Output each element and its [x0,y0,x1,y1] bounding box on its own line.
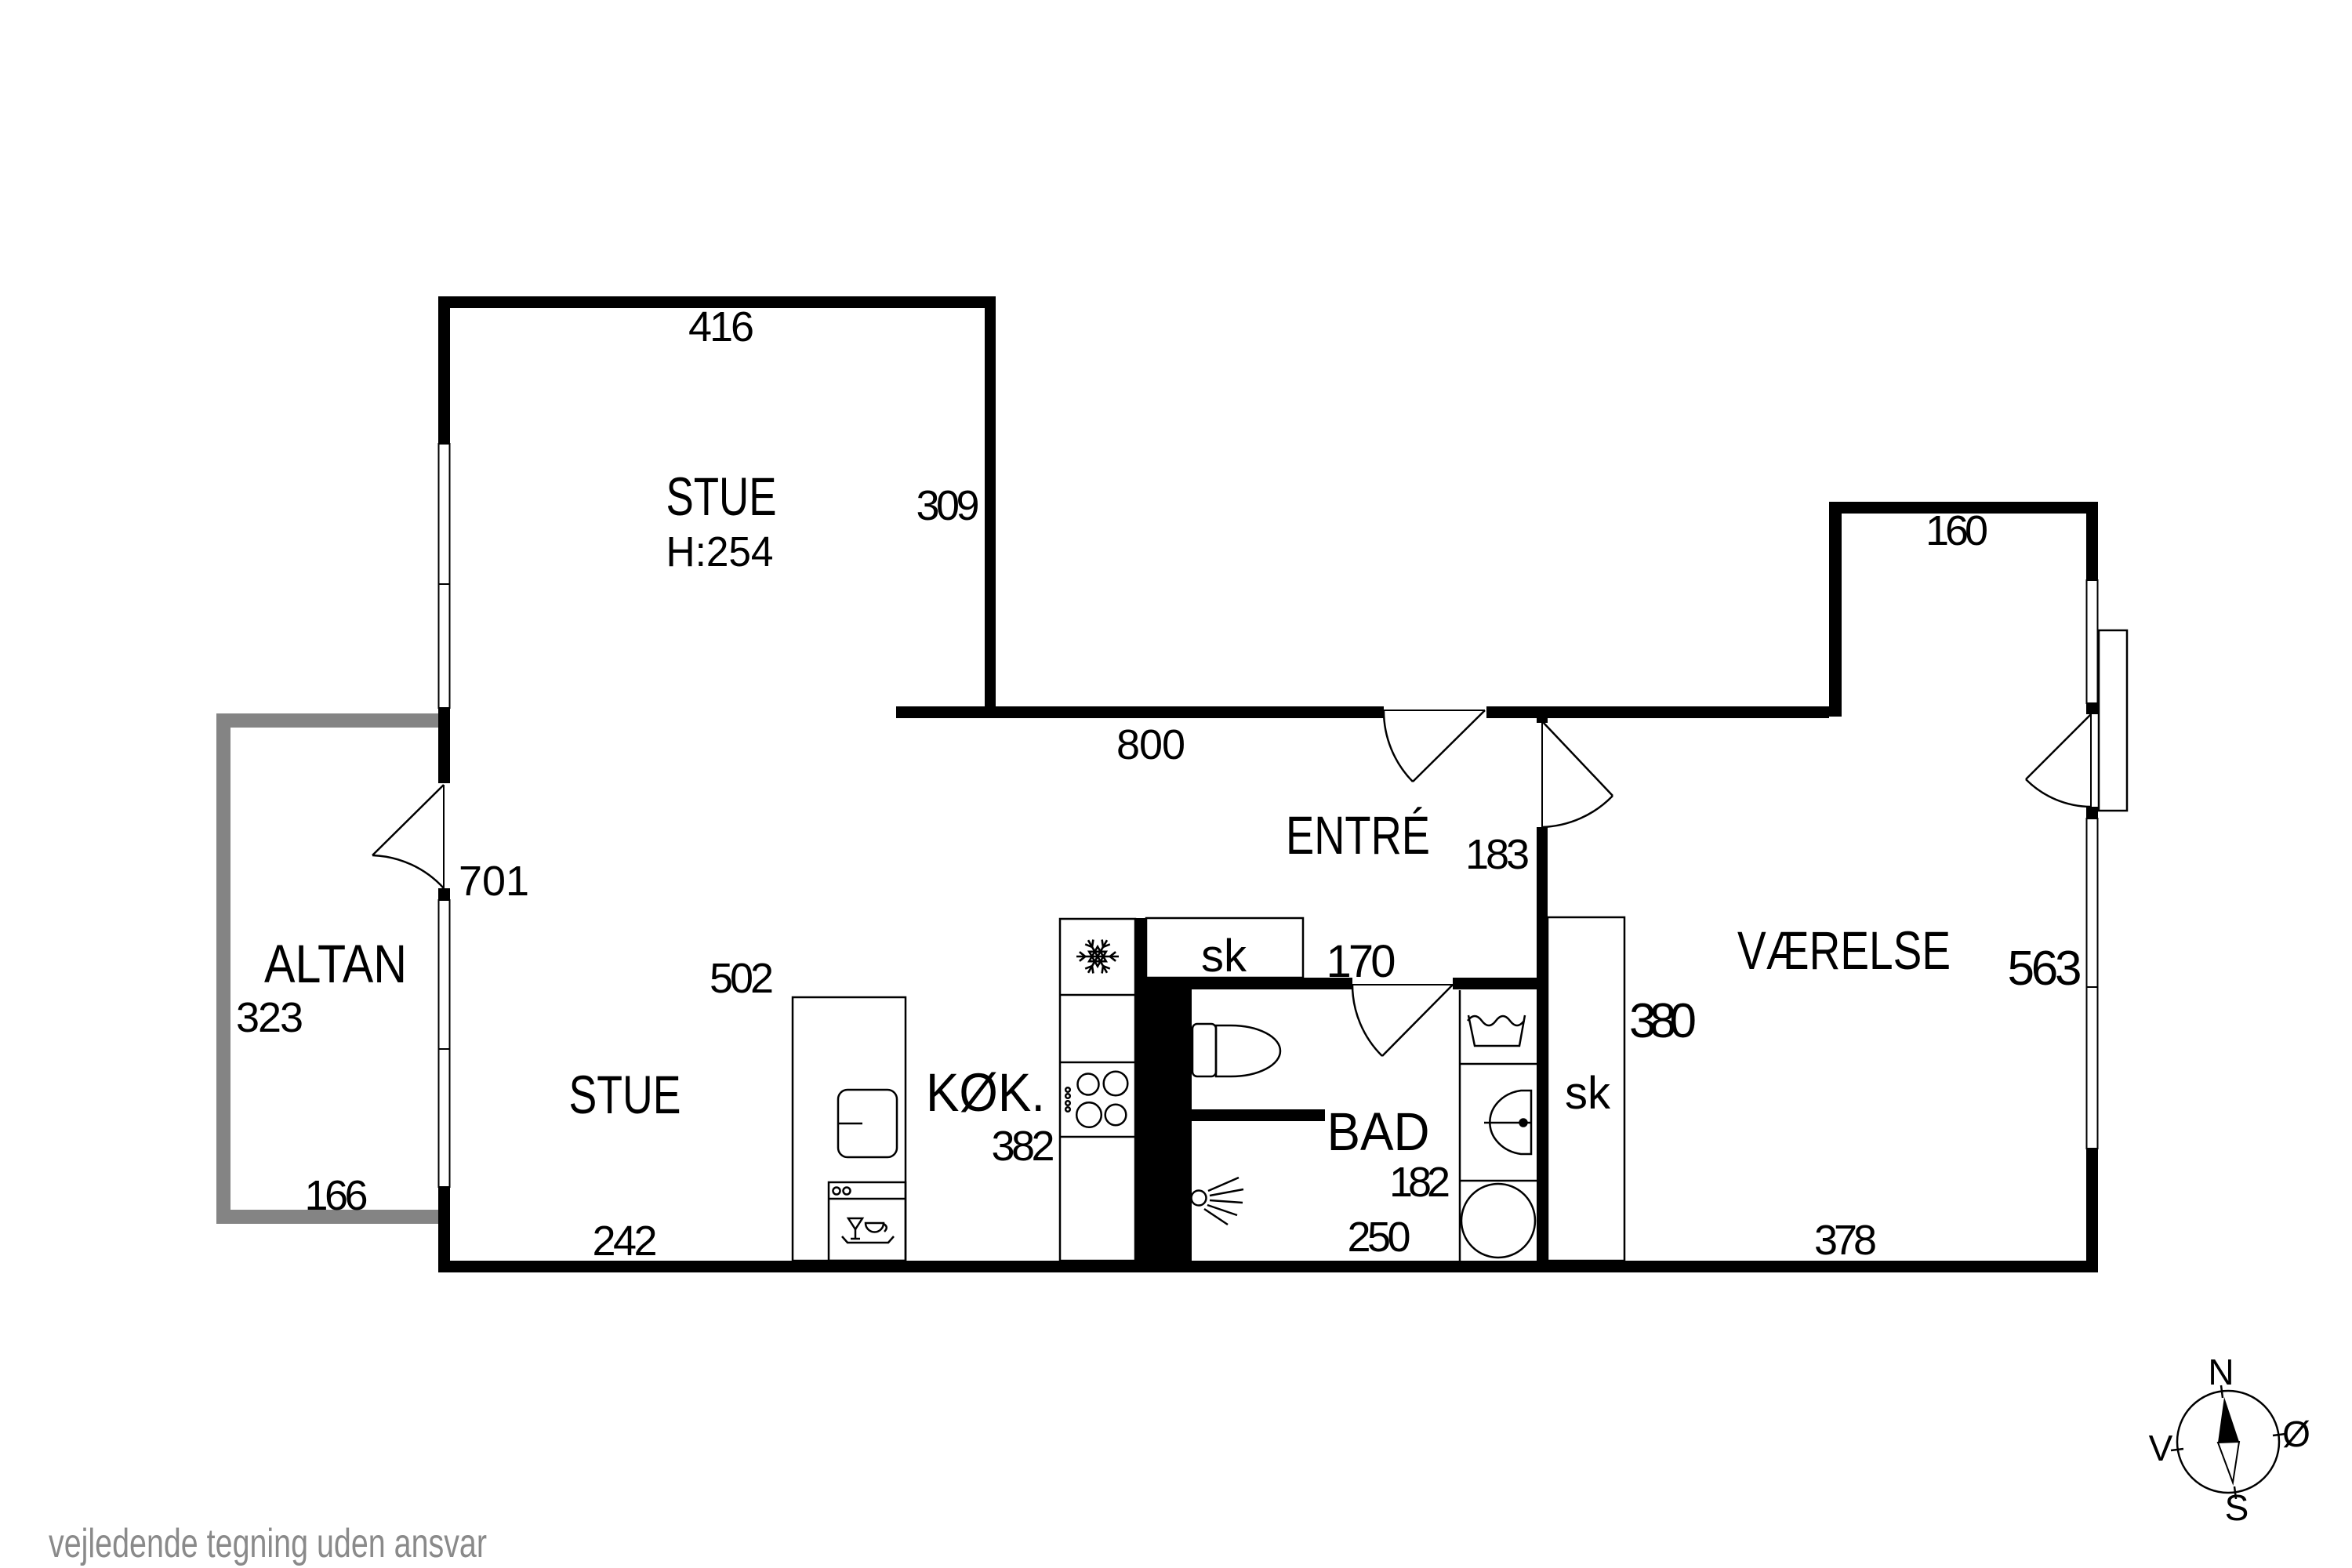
svg-text:323: 323 [236,994,303,1041]
svg-text:160: 160 [1926,507,1988,554]
svg-text:vejledende tegning uden ansvar: vejledende tegning uden ansvar [49,1521,487,1566]
svg-text:242: 242 [593,1218,658,1265]
svg-text:V: V [2149,1428,2173,1468]
svg-text:STUE: STUE [666,466,777,527]
svg-text:sk: sk [1565,1068,1611,1119]
svg-text:sk: sk [1201,931,1247,982]
svg-text:416: 416 [688,303,754,350]
svg-text:502: 502 [710,955,774,1002]
svg-text:182: 182 [1389,1159,1450,1206]
svg-text:ENTRÉ: ENTRÉ [1286,805,1430,866]
svg-text:KØK.: KØK. [926,1062,1045,1123]
svg-text:563: 563 [2008,942,2082,996]
svg-text:ALTAN: ALTAN [264,934,407,994]
svg-text:183: 183 [1465,831,1530,878]
svg-text:BAD: BAD [1327,1102,1430,1162]
svg-text:N: N [2208,1352,2234,1392]
svg-text:STUE: STUE [569,1065,681,1125]
svg-text:382: 382 [992,1123,1055,1170]
svg-text:170: 170 [1327,936,1396,987]
svg-text:701: 701 [459,858,529,905]
svg-text:H:254: H:254 [666,528,774,575]
svg-text:250: 250 [1348,1214,1411,1261]
svg-text:166: 166 [305,1172,368,1219]
svg-text:S: S [2225,1487,2249,1528]
svg-text:800: 800 [1116,721,1185,768]
svg-text:VÆRELSE: VÆRELSE [1737,920,1951,981]
svg-text:378: 378 [1814,1217,1877,1264]
svg-text:Ø: Ø [2282,1414,2310,1454]
svg-text:380: 380 [1629,994,1697,1048]
svg-text:309: 309 [916,482,980,529]
